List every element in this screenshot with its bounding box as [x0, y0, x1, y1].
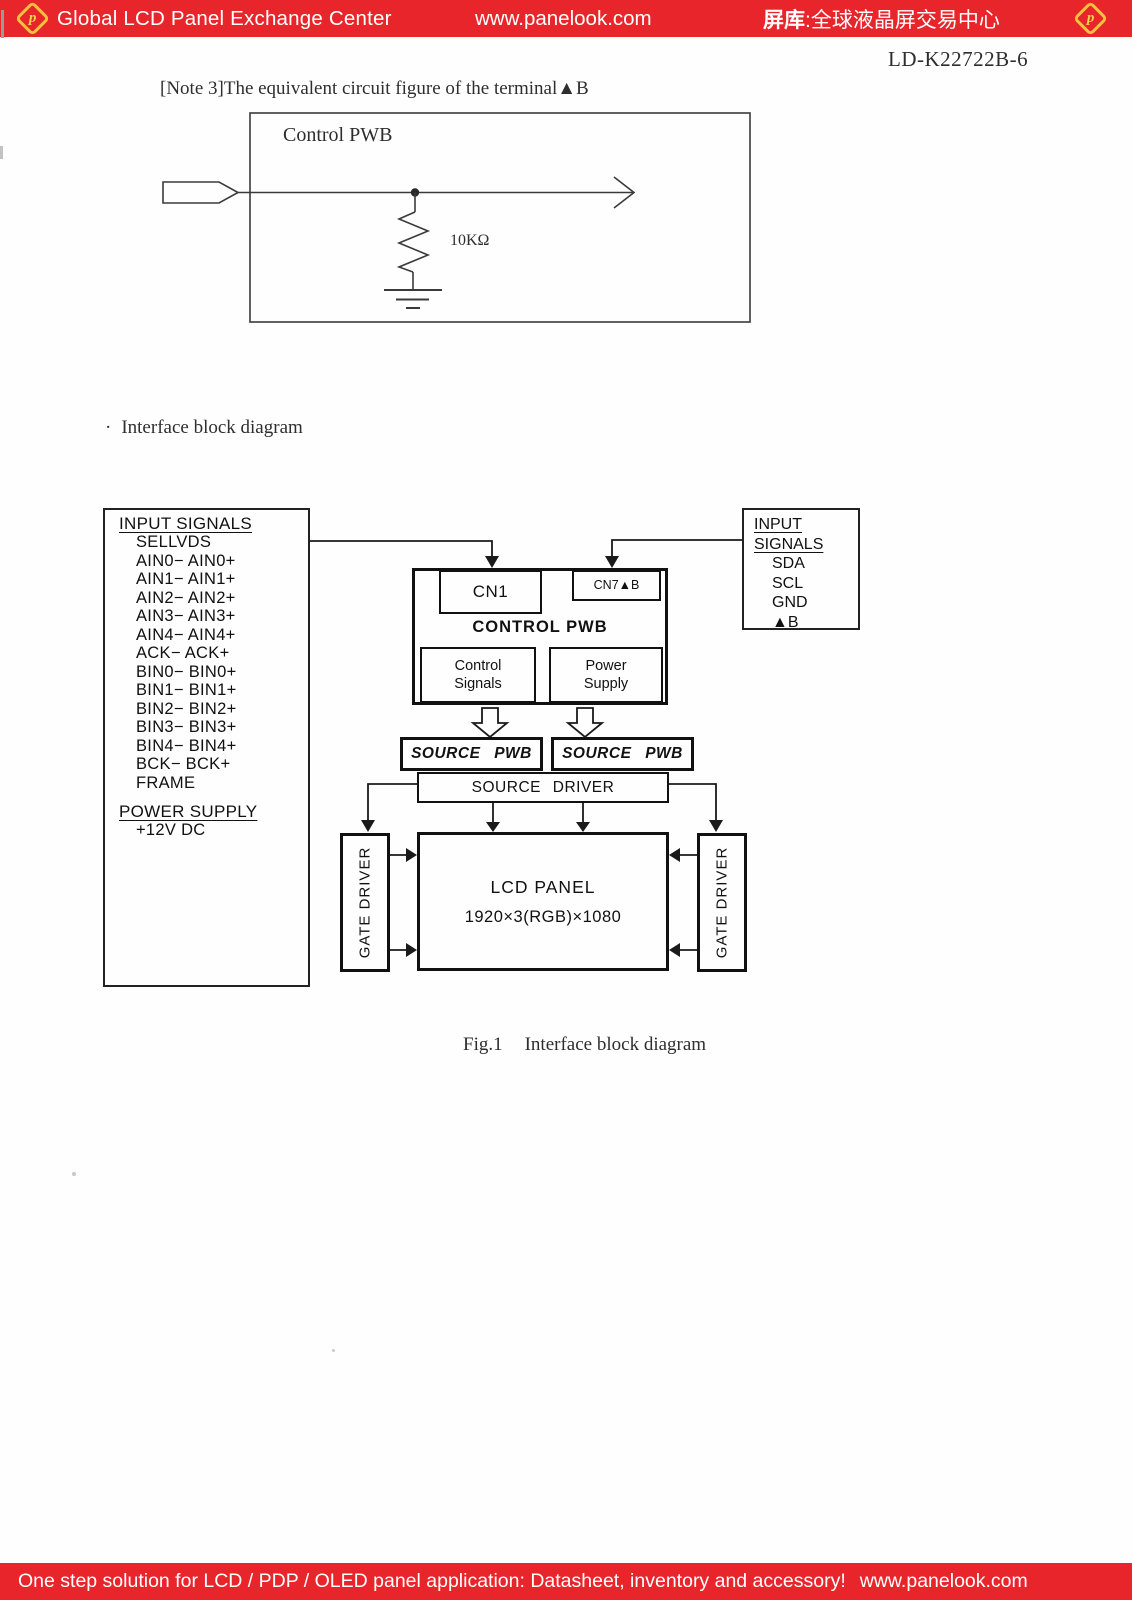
source-pwb-left: SOURCE PWB [400, 737, 543, 771]
hollow-arrow-down [473, 708, 507, 737]
signal-item: BIN2− BIN2+ [119, 700, 308, 719]
signal-item: AIN4− AIN4+ [119, 626, 308, 645]
gate-driver-left: GATE DRIVER [340, 833, 390, 972]
signal-item: BIN4− BIN4+ [119, 737, 308, 756]
input-signals-heading: INPUT SIGNALS [119, 514, 308, 533]
lcd-panel-resolution: 1920×3(RGB)×1080 [465, 908, 622, 927]
cn7-connector: CN7▲B [572, 570, 661, 601]
resistor-zigzag [399, 212, 428, 272]
control-pwb-title: CONTROL PWB [412, 618, 668, 637]
signal-item: BIN1− BIN1+ [119, 681, 308, 700]
signal-item: AIN3− AIN3+ [119, 607, 308, 626]
input-signals-panel-left: INPUT SIGNALS SELLVDS AIN0− AIN0+ AIN1− … [103, 508, 310, 987]
control-signals-box: Control Signals [420, 647, 536, 703]
lcd-panel-box: LCD PANEL 1920×3(RGB)×1080 [417, 832, 669, 971]
power-supply-box: Power Supply [549, 647, 663, 703]
signal-item: BIN0− BIN0+ [119, 663, 308, 682]
signal-item: ACK− ACK+ [119, 644, 308, 663]
gate-driver-left-label: GATE DRIVER [357, 847, 374, 959]
source-pwb-right: SOURCE PWB [551, 737, 694, 771]
power-supply-line2: Supply [551, 675, 661, 693]
input-heading-line1: INPUT [754, 515, 858, 535]
datasheet-page: p Global LCD Panel Exchange Center www.p… [0, 0, 1132, 1600]
cn1-connector: CN1 [439, 570, 542, 614]
signal-item: FRAME [119, 774, 308, 793]
lcd-panel-title: LCD PANEL [491, 877, 596, 898]
signal-item: SDA [754, 554, 858, 574]
signal-item: AIN0− AIN0+ [119, 552, 308, 571]
signal-item: AIN2− AIN2+ [119, 589, 308, 608]
gate-driver-right-label: GATE DRIVER [714, 847, 731, 959]
gate-driver-right: GATE DRIVER [697, 833, 747, 972]
control-signals-line1: Control [422, 657, 534, 675]
hollow-arrow-down [568, 708, 602, 737]
power-supply-heading: POWER SUPPLY [119, 802, 308, 821]
input-heading-line2: SIGNALS [754, 535, 858, 555]
signal-item: SELLVDS [119, 533, 308, 552]
power-supply-line1: Power [551, 657, 661, 675]
signal-item: SCL [754, 574, 858, 594]
ground-symbol [384, 290, 442, 308]
equivalent-circuit-figure [163, 113, 750, 322]
signal-item: ▲B [754, 613, 858, 633]
control-signals-line2: Signals [422, 675, 534, 693]
signal-item: GND [754, 593, 858, 613]
input-signals-panel-right: INPUT SIGNALS SDA SCL GND ▲B [742, 508, 860, 630]
signal-item: BCK− BCK+ [119, 755, 308, 774]
signal-item: AIN1− AIN1+ [119, 570, 308, 589]
source-driver-box: SOURCE DRIVER [417, 772, 669, 803]
power-supply-value: +12V DC [119, 821, 308, 840]
signal-item: BIN3− BIN3+ [119, 718, 308, 737]
